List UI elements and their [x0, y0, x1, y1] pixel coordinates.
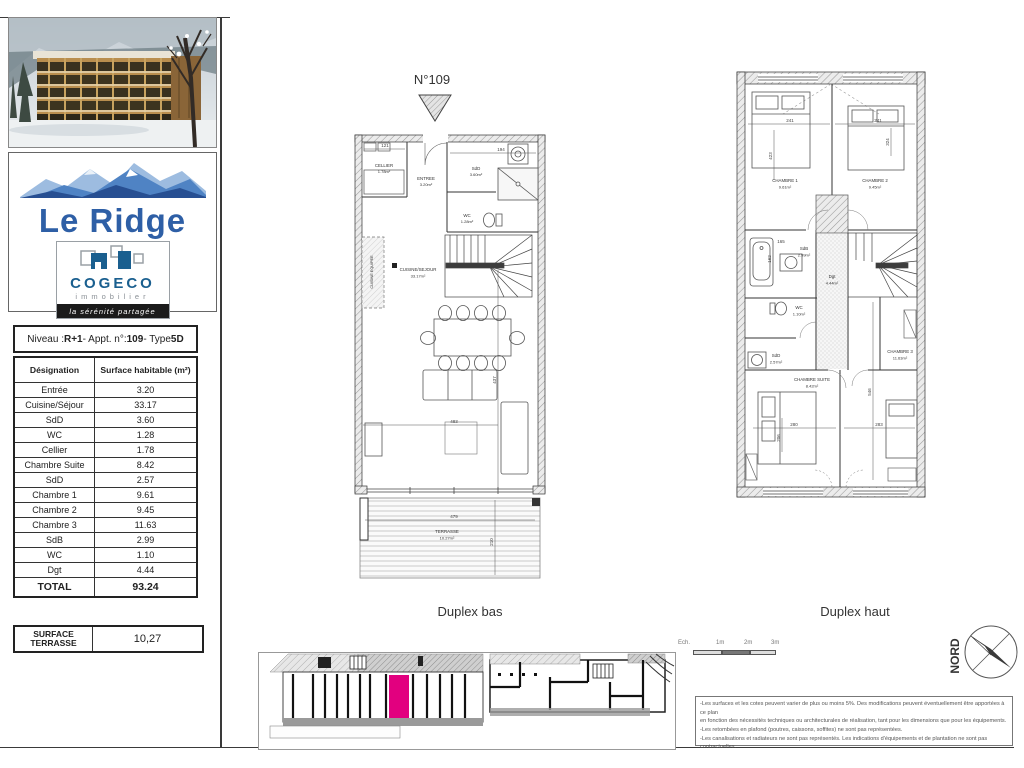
svg-text:11.63m²: 11.63m² — [893, 356, 908, 361]
room-label: CUISINE EQUIPEE — [370, 255, 374, 289]
room-label: CHAMBRE SUITE — [794, 377, 830, 382]
title-prefix: Niveau : — [27, 334, 64, 345]
project-name: Le Ridge — [9, 204, 216, 238]
col-header-designation: Désignation — [14, 357, 95, 383]
svg-text:165: 165 — [777, 239, 785, 244]
staircase — [445, 235, 532, 297]
svg-text:10.27m²: 10.27m² — [440, 536, 455, 541]
svg-text:1.28m²: 1.28m² — [461, 219, 474, 224]
floorplan-duplex-haut: 241 241 423 324 165 162 280 283 546 206 … — [728, 70, 933, 503]
disclaimer-line: en fonction des nécessités techniques ou… — [700, 717, 1008, 726]
unit-number-label: N°109 — [392, 72, 472, 87]
col-header-surface: Surface habitable (m²) — [95, 357, 198, 383]
brand-panel: Le Ridge COGECO immobilier la sérénité p… — [8, 152, 217, 312]
room-label: CHAMBRE 3 — [887, 349, 913, 354]
caption-duplex-haut: Duplex haut — [790, 604, 920, 619]
room-label: CUISINE/SEJOUR — [400, 267, 437, 272]
table-row: SdD3.60 — [14, 413, 197, 428]
room-label: Dgt — [829, 274, 837, 279]
table-row: Chambre 311.63 — [14, 518, 197, 533]
table-row: Cellier1.78 — [14, 443, 197, 458]
room-label: CHAMBRE 2 — [862, 178, 888, 183]
compass-label: NORD — [948, 638, 962, 674]
roof-pitch-lines — [783, 84, 879, 114]
table-row: Chambre 19.61 — [14, 488, 197, 503]
table-row: Cuisine/Séjour33.17 — [14, 398, 197, 413]
room-label: SdB — [800, 246, 808, 251]
shower — [498, 168, 538, 200]
key-plan — [258, 652, 676, 750]
table-row: Chambre Suite8.42 — [14, 458, 197, 473]
svg-text:241: 241 — [786, 118, 794, 123]
entrance-marker-icon — [417, 93, 453, 123]
left-column-divider — [220, 17, 222, 747]
sofa — [423, 362, 497, 400]
title-level: R+1 — [64, 334, 83, 345]
svg-text:479: 479 — [450, 514, 458, 519]
building-photo-art — [9, 18, 216, 147]
svg-text:437: 437 — [492, 376, 497, 384]
cogeco-logo: COGECO immobilier la sérénité partagée — [56, 241, 170, 319]
building — [33, 51, 201, 124]
room-label: SdD — [772, 353, 781, 358]
svg-text:483: 483 — [450, 419, 458, 424]
staircase — [848, 233, 917, 297]
sdd-sink — [748, 352, 766, 368]
bay-window — [367, 487, 533, 494]
svg-text:2.99m²: 2.99m² — [798, 253, 811, 258]
chaise — [501, 402, 528, 474]
mountain-ridge-logo-icon — [18, 157, 208, 201]
svg-text:324: 324 — [885, 138, 890, 146]
svg-text:4.44m²: 4.44m² — [826, 281, 839, 286]
building-photo — [8, 17, 217, 148]
svg-text:121: 121 — [381, 143, 389, 148]
terrace-surface-box: SURFACE TERRASSE 10,27 — [13, 625, 204, 653]
title-apt-number: 109 — [127, 334, 144, 345]
cogeco-pictogram-icon — [78, 245, 148, 271]
svg-text:280: 280 — [790, 422, 798, 427]
table-row: SdD2.57 — [14, 473, 197, 488]
disclaimer-line: -Les surfaces et les cotes peuvent varie… — [700, 700, 1008, 717]
room-label: CHAMBRE 1 — [772, 178, 798, 183]
svg-text:8.42m²: 8.42m² — [806, 384, 819, 389]
svg-text:1.10m²: 1.10m² — [793, 312, 806, 317]
bed-chambre3 — [886, 400, 917, 458]
right-stairs — [593, 664, 613, 678]
room-labels: CELLIER 1.78m² ENTREE 3.20m² SdD 3.60m² … — [370, 163, 483, 541]
table-row: SdB2.99 — [14, 533, 197, 548]
room-label: CELLIER — [375, 163, 393, 168]
washing-machine — [508, 144, 528, 164]
disclaimer-box: -Les surfaces et les cotes peuvent varie… — [695, 696, 1013, 746]
svg-text:9.45m²: 9.45m² — [869, 185, 882, 190]
apartment-title: Niveau : R+1 - Appt. n°: 109 - Type 5D — [13, 325, 198, 353]
svg-text:3.60m²: 3.60m² — [470, 172, 483, 177]
room-label: SdD — [472, 166, 481, 171]
room-label: ENTREE — [417, 176, 435, 181]
table-row: WC1.10 — [14, 548, 197, 563]
coffee-table — [445, 422, 477, 454]
hallway-floor — [817, 234, 847, 369]
agency-name: COGECO — [57, 276, 169, 292]
disclaimer-line: -Les canalisations et radiateurs ne sont… — [700, 735, 1008, 752]
dining-table — [421, 306, 525, 371]
svg-text:546: 546 — [867, 388, 872, 396]
svg-text:2.57m²: 2.57m² — [770, 360, 783, 365]
svg-text:9.61m²: 9.61m² — [779, 185, 792, 190]
svg-text:241: 241 — [874, 118, 882, 123]
north-compass-icon: NORD — [945, 608, 1021, 696]
caption-duplex-bas: Duplex bas — [380, 604, 560, 619]
room-label: WC — [463, 213, 470, 218]
disclaimer-line: -Les retombées en plafond (poutres, cais… — [700, 726, 1008, 735]
wardrobe-block — [816, 195, 848, 233]
terrace-surface-label: SURFACE TERRASSE — [15, 627, 93, 651]
highlighted-unit — [389, 675, 409, 720]
svg-text:1.78m²: 1.78m² — [378, 169, 391, 174]
table-row: Entrée3.20 — [14, 383, 197, 398]
terrace-band-left — [283, 718, 483, 726]
room-label: WC — [795, 305, 802, 310]
toilet — [770, 302, 787, 315]
terrace-surface-value: 10,27 — [93, 627, 202, 651]
surfaces-table: DésignationSurface habitable (m²) Entrée… — [13, 356, 198, 598]
table-row: Chambre 29.45 — [14, 503, 197, 518]
title-type: 5D — [171, 334, 184, 345]
dimension-labels: 121 194 483 437 479 210 — [381, 143, 505, 546]
svg-text:3.20m²: 3.20m² — [420, 182, 433, 187]
svg-text:283: 283 — [875, 422, 883, 427]
svg-text:206: 206 — [776, 434, 781, 442]
scale-bar: Ech. 1m 2m 3m — [678, 640, 784, 660]
floorplan-duplex-bas: 121 194 483 437 479 210 CELLIER 1.78m² E… — [350, 130, 550, 590]
column — [392, 263, 397, 268]
svg-text:33.17m²: 33.17m² — [411, 274, 426, 279]
sideboard — [365, 423, 382, 456]
entrance-door-swing — [425, 143, 447, 165]
svg-text:162: 162 — [767, 255, 772, 263]
table-row: WC1.28 — [14, 428, 197, 443]
bed-chambre2 — [848, 106, 904, 170]
svg-text:210: 210 — [489, 538, 494, 546]
agency-field: immobilier — [57, 292, 169, 302]
lower-terrace — [270, 726, 400, 738]
desk — [888, 468, 916, 481]
table-total-row: TOTAL93.24 — [14, 578, 197, 598]
toilet — [484, 213, 503, 227]
bed-chambre1 — [752, 92, 810, 168]
svg-text:423: 423 — [768, 152, 773, 160]
agency-tagline: la sérénité partagée — [57, 304, 169, 318]
room-label: TERRASSE — [435, 529, 459, 534]
svg-text:194: 194 — [497, 147, 505, 152]
table-row: Dgt4.44 — [14, 563, 197, 578]
